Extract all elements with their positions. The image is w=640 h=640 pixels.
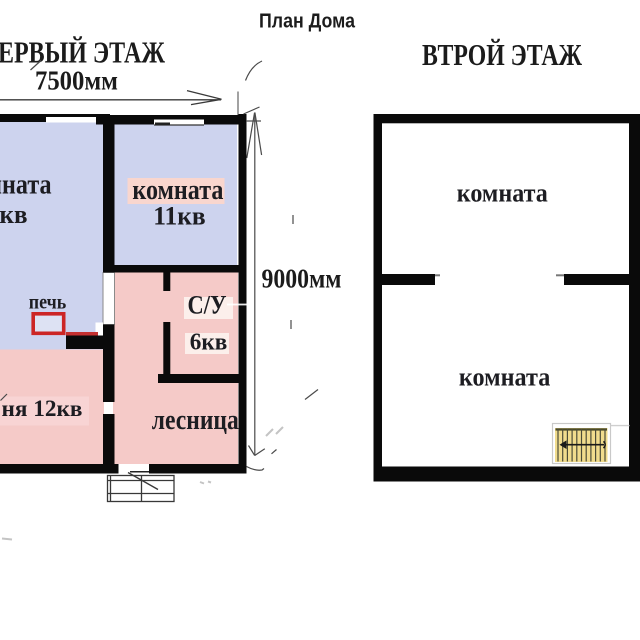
svg-text:17кв: 17кв <box>0 200 28 229</box>
svg-text:комната: комната <box>0 169 52 201</box>
svg-text:План Дома: План Дома <box>259 11 356 33</box>
svg-text:печь: печь <box>29 290 67 314</box>
svg-text:лесница: лесница <box>152 404 239 436</box>
svg-text:9000мм: 9000мм <box>262 264 342 294</box>
svg-text:комната: комната <box>457 179 548 208</box>
svg-text:6кв: 6кв <box>190 330 228 356</box>
svg-text:ня 12кв: ня 12кв <box>2 396 83 421</box>
svg-text:ЕРВЫЙ ЭТАЖ: ЕРВЫЙ ЭТАЖ <box>0 35 165 70</box>
svg-text:11кв: 11кв <box>153 201 206 230</box>
svg-text:7500мм: 7500мм <box>35 66 118 96</box>
svg-text:С/У: С/У <box>188 291 227 320</box>
svg-text:ВТРОЙ ЭТАЖ: ВТРОЙ ЭТАЖ <box>422 37 582 72</box>
svg-text:комната: комната <box>459 363 550 392</box>
